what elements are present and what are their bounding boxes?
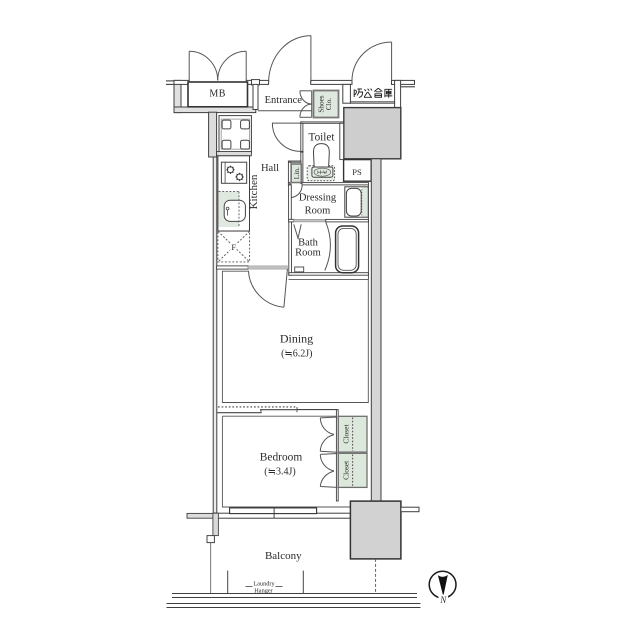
svg-text:Closet: Closet bbox=[341, 460, 350, 480]
svg-text:(≒3.4J): (≒3.4J) bbox=[264, 467, 295, 478]
svg-text:Room: Room bbox=[295, 248, 321, 259]
svg-text:F: F bbox=[231, 242, 236, 252]
svg-text:Kitchen: Kitchen bbox=[248, 174, 260, 209]
svg-text:PS: PS bbox=[352, 167, 362, 177]
svg-text:N: N bbox=[439, 595, 447, 605]
svg-text:Entrance: Entrance bbox=[265, 95, 303, 106]
svg-text:Toilet: Toilet bbox=[309, 132, 336, 144]
svg-text:Clo.: Clo. bbox=[325, 98, 333, 110]
svg-text:Room: Room bbox=[305, 206, 331, 217]
svg-text:Dressing: Dressing bbox=[299, 193, 337, 204]
svg-text:Bedroom: Bedroom bbox=[260, 452, 303, 464]
svg-text:Dining: Dining bbox=[280, 332, 313, 346]
svg-text:Lin.: Lin. bbox=[292, 167, 301, 179]
svg-text:Hall: Hall bbox=[261, 163, 279, 174]
svg-text:(≒6.2J): (≒6.2J) bbox=[281, 349, 312, 360]
svg-text:Balcony: Balcony bbox=[265, 550, 302, 562]
svg-text:Laundry: Laundry bbox=[253, 581, 275, 588]
svg-text:MB: MB bbox=[209, 89, 226, 100]
svg-text:Closet: Closet bbox=[341, 424, 350, 444]
